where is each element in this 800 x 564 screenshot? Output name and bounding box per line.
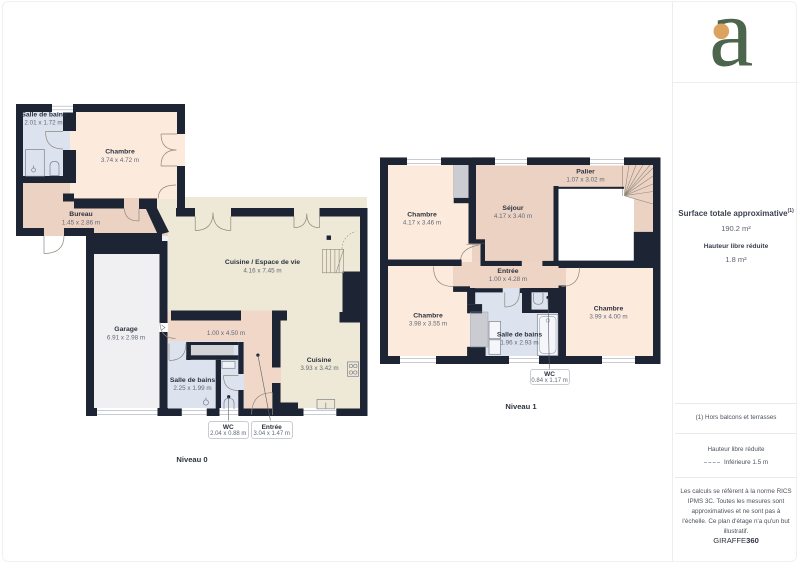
svg-text:Chambre: Chambre xyxy=(407,212,437,219)
svg-text:3.98 x 3.55 m: 3.98 x 3.55 m xyxy=(409,321,447,328)
svg-text:Chambre: Chambre xyxy=(594,306,624,313)
svg-text:4.16 x 7.45 m: 4.16 x 7.45 m xyxy=(243,268,281,275)
svg-text:3.74 x 4.72 m: 3.74 x 4.72 m xyxy=(101,157,139,164)
svg-text:Salle de bains: Salle de bains xyxy=(21,112,67,119)
svg-text:Palier: Palier xyxy=(576,169,595,176)
svg-text:a: a xyxy=(709,0,753,82)
svg-text:6.91 x 2.98 m: 6.91 x 2.98 m xyxy=(107,335,145,342)
svg-text:2.25 x 1.99 m: 2.25 x 1.99 m xyxy=(173,385,211,392)
svg-text:Chambre: Chambre xyxy=(105,149,135,156)
svg-text:Cuisine: Cuisine xyxy=(307,357,332,364)
svg-text:1.00 x 4.28 m: 1.00 x 4.28 m xyxy=(489,276,527,283)
svg-text:4.17 x 3.46 m: 4.17 x 3.46 m xyxy=(403,220,441,227)
svg-text:Garage: Garage xyxy=(114,326,138,333)
svg-text:Séjour: Séjour xyxy=(502,205,524,212)
svg-text:1.00 x 4.50 m: 1.00 x 4.50 m xyxy=(207,330,245,337)
svg-text:Bureau: Bureau xyxy=(69,211,92,218)
svg-text:3.93 x 3.42 m: 3.93 x 3.42 m xyxy=(300,365,338,372)
svg-text:4.17 x 3.40 m: 4.17 x 3.40 m xyxy=(494,213,532,220)
svg-text:1.07 x 3.02 m: 1.07 x 3.02 m xyxy=(566,177,604,184)
svg-text:Salle de bains: Salle de bains xyxy=(170,377,216,384)
svg-text:Cuisine / Espace de vie: Cuisine / Espace de vie xyxy=(225,259,300,266)
svg-text:3.99 x 4.00 m: 3.99 x 4.00 m xyxy=(589,314,627,321)
svg-text:Entrée: Entrée xyxy=(497,268,518,275)
svg-text:1.45 x 2.86 m: 1.45 x 2.86 m xyxy=(62,220,100,227)
svg-text:2.01 x 1.72 m: 2.01 x 1.72 m xyxy=(24,120,62,127)
svg-text:Salle de bains: Salle de bains xyxy=(497,332,543,339)
svg-text:1.96 x 2.93 m: 1.96 x 2.93 m xyxy=(500,340,538,347)
svg-text:Chambre: Chambre xyxy=(413,313,443,320)
